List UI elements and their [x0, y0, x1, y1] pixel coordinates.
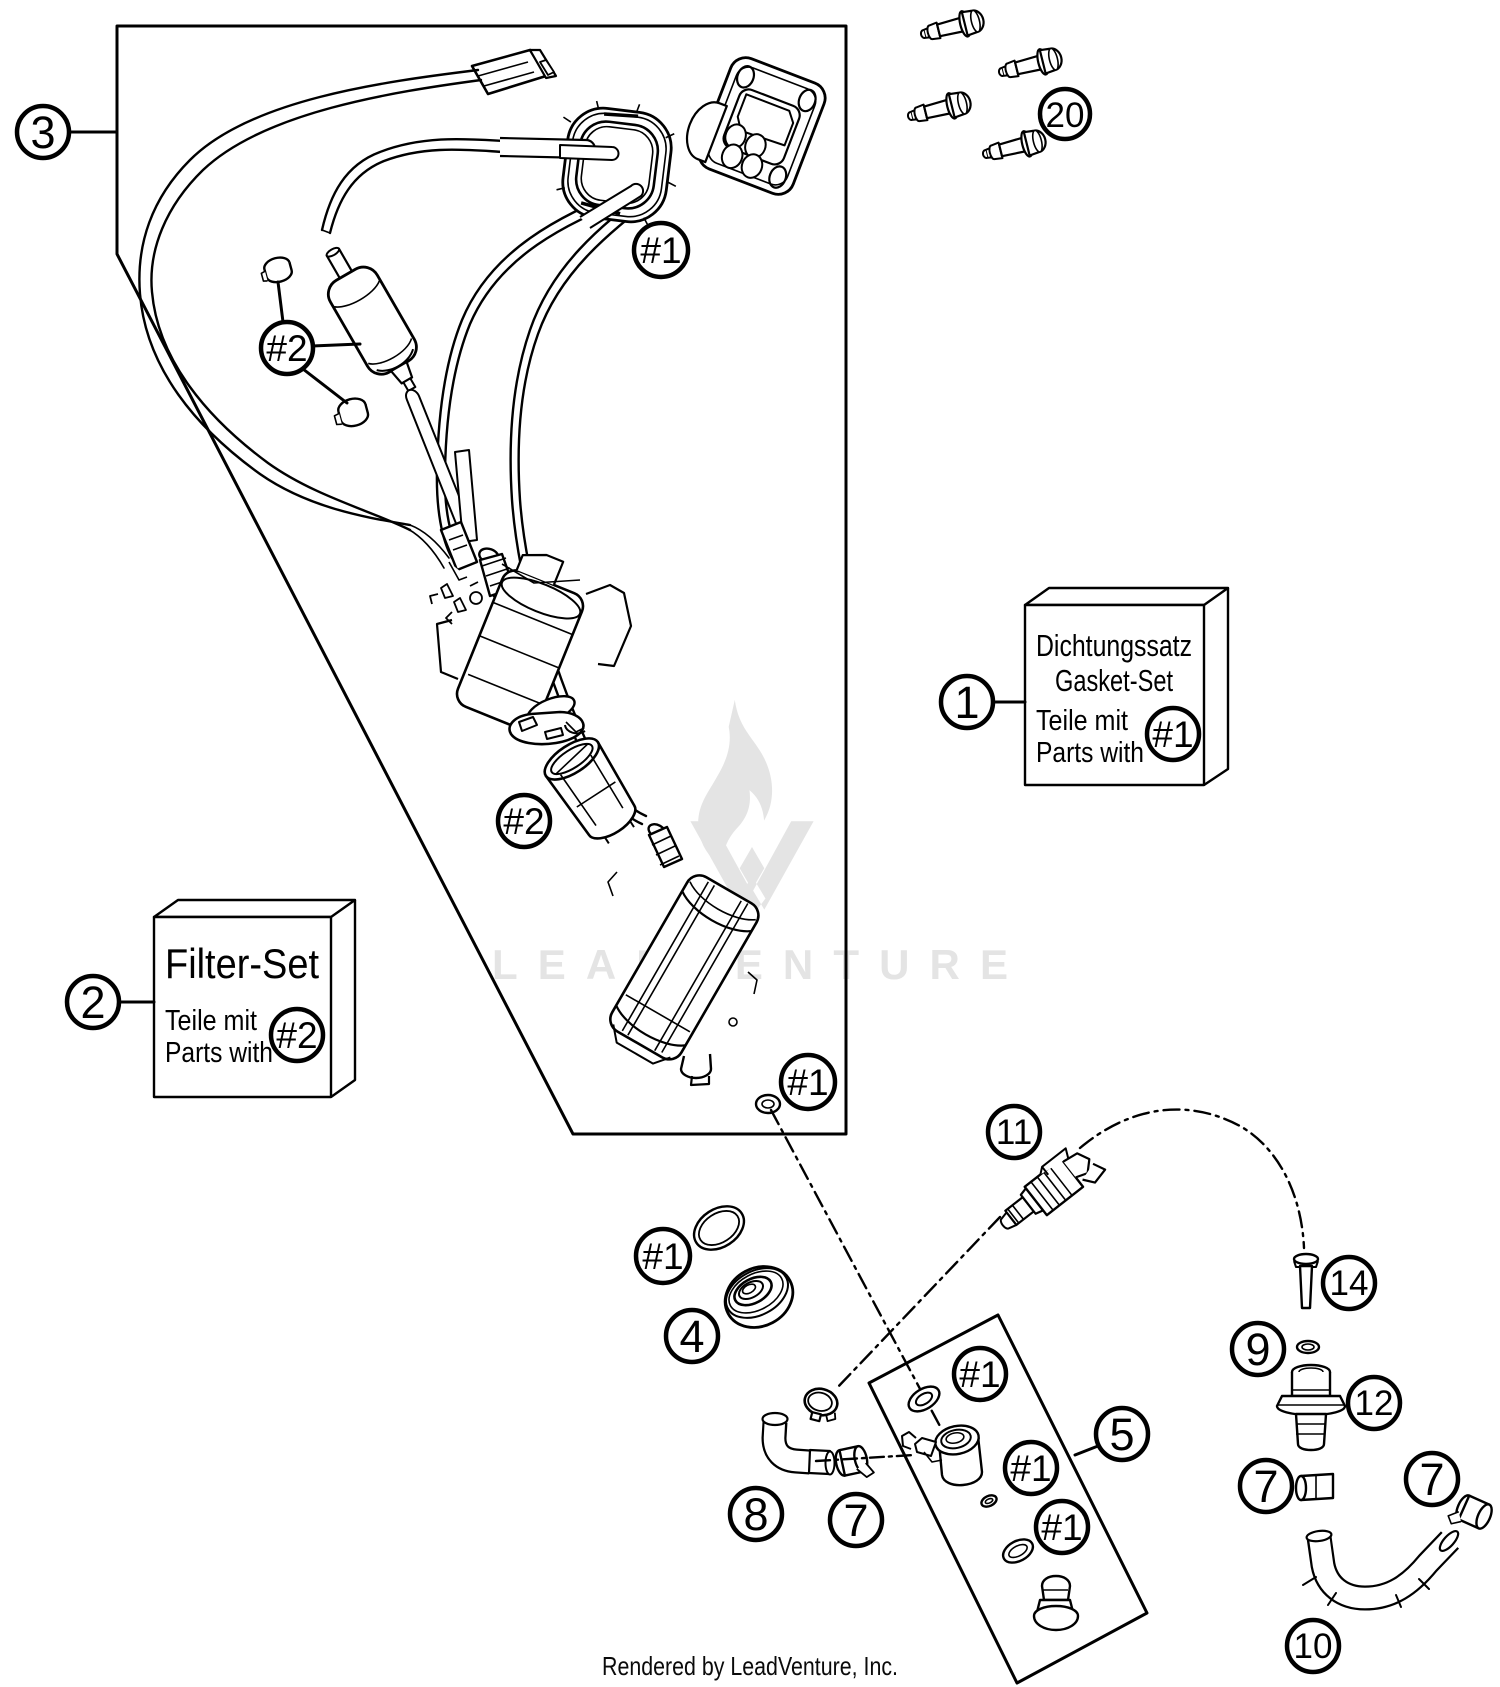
- svg-text:14: 14: [1330, 1264, 1369, 1303]
- svg-text:#1: #1: [1041, 1507, 1082, 1548]
- svg-text:Teile mit: Teile mit: [1036, 705, 1128, 737]
- svg-text:#1: #1: [1152, 714, 1193, 755]
- svg-text:Parts with: Parts with: [165, 1037, 273, 1069]
- svg-text:Rendered by LeadVenture, Inc.: Rendered by LeadVenture, Inc.: [602, 1651, 898, 1681]
- svg-text:#1: #1: [959, 1354, 1000, 1395]
- svg-text:4: 4: [679, 1311, 704, 1362]
- svg-text:12: 12: [1355, 1384, 1394, 1423]
- svg-text:5: 5: [1109, 1409, 1134, 1460]
- svg-text:#1: #1: [642, 1236, 683, 1277]
- svg-text:2: 2: [80, 977, 105, 1028]
- svg-text:Filter-Set: Filter-Set: [165, 940, 319, 987]
- svg-text:#1: #1: [640, 230, 681, 271]
- svg-text:Teile mit: Teile mit: [165, 1005, 257, 1037]
- svg-text:7: 7: [1253, 1461, 1278, 1512]
- svg-text:Parts with: Parts with: [1036, 737, 1144, 769]
- svg-text:Dichtungssatz: Dichtungssatz: [1036, 628, 1192, 663]
- svg-text:9: 9: [1245, 1324, 1270, 1375]
- svg-text:8: 8: [743, 1489, 768, 1540]
- svg-text:#2: #2: [276, 1015, 317, 1056]
- svg-text:#2: #2: [266, 328, 307, 369]
- svg-text:#2: #2: [503, 801, 544, 842]
- svg-text:20: 20: [1046, 96, 1085, 135]
- svg-text:3: 3: [30, 107, 55, 158]
- svg-text:10: 10: [1294, 1627, 1333, 1666]
- svg-text:1: 1: [954, 677, 979, 728]
- svg-text:11: 11: [996, 1113, 1032, 1152]
- svg-text:7: 7: [843, 1495, 868, 1546]
- svg-text:Gasket-Set: Gasket-Set: [1055, 663, 1173, 698]
- svg-text:7: 7: [1419, 1454, 1444, 1505]
- svg-text:#1: #1: [1010, 1448, 1051, 1489]
- svg-text:#1: #1: [787, 1062, 828, 1103]
